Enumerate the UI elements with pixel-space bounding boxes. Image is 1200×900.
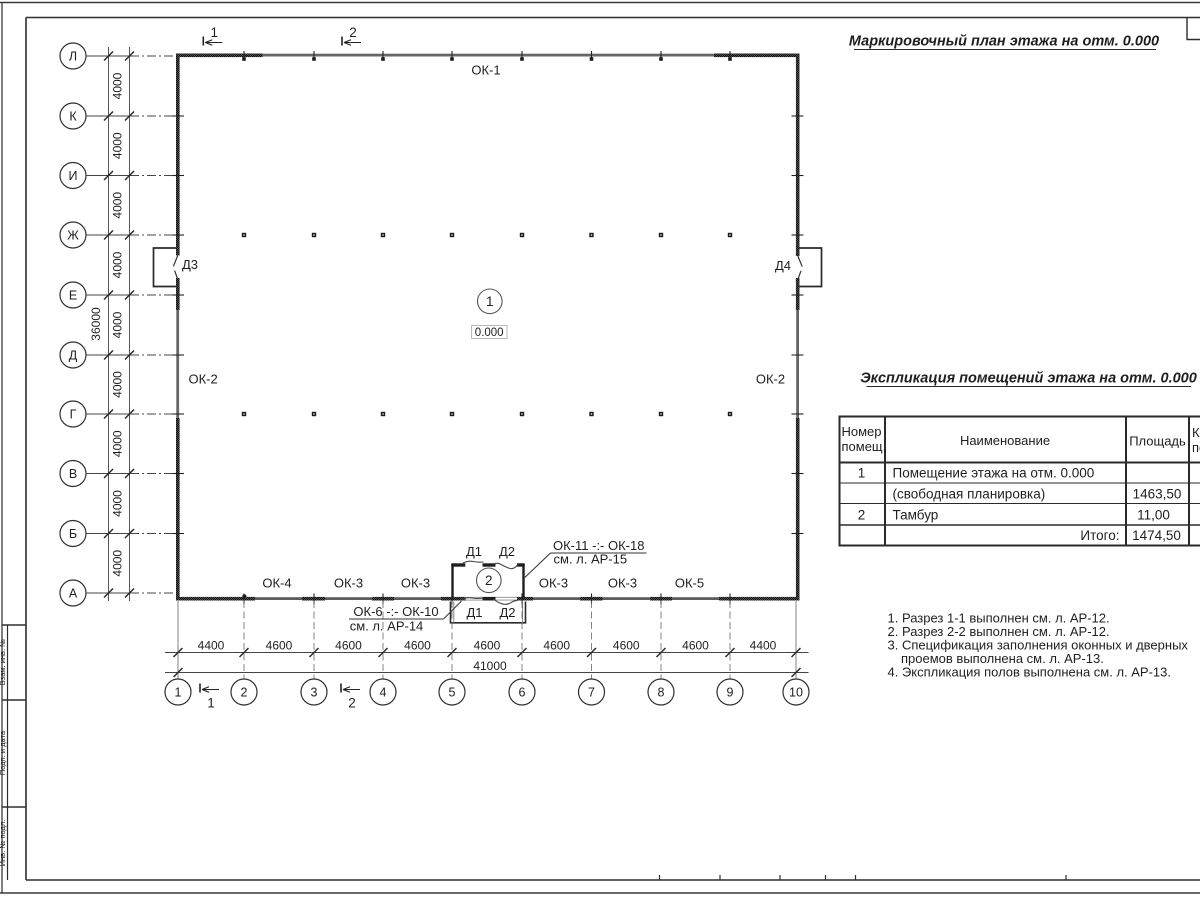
svg-text:7: 7 bbox=[588, 685, 595, 699]
svg-text:4000: 4000 bbox=[111, 430, 125, 457]
svg-text:1474,50: 1474,50 bbox=[1132, 528, 1181, 543]
svg-text:Номер: Номер bbox=[842, 424, 882, 439]
svg-text:1: 1 bbox=[211, 25, 219, 40]
svg-text:Д: Д bbox=[69, 348, 78, 362]
svg-text:Ж: Ж bbox=[67, 228, 79, 242]
svg-text:см. л. АР-15: см. л. АР-15 bbox=[554, 552, 628, 567]
svg-text:4600: 4600 bbox=[543, 639, 570, 653]
svg-text:ОК-2: ОК-2 bbox=[189, 372, 218, 387]
svg-text:Инв. № подл.: Инв. № подл. bbox=[0, 820, 7, 867]
svg-text:2: 2 bbox=[349, 25, 357, 40]
svg-text:1463,50: 1463,50 bbox=[1133, 487, 1182, 502]
svg-text:2: 2 bbox=[858, 508, 866, 523]
svg-text:Маркировочный план этажа на от: Маркировочный план этажа на отм. 0.000 bbox=[849, 34, 1159, 50]
svg-text:11,00: 11,00 bbox=[1137, 508, 1170, 523]
svg-text:4000: 4000 bbox=[111, 132, 125, 159]
svg-text:помещения: помещения bbox=[1192, 440, 1200, 455]
svg-text:2: 2 bbox=[485, 573, 493, 588]
svg-text:(свободная планировка): (свободная планировка) bbox=[893, 487, 1046, 502]
svg-text:Д2: Д2 bbox=[499, 605, 515, 620]
svg-text:ОК-3: ОК-3 bbox=[608, 576, 637, 591]
svg-text:4000: 4000 bbox=[111, 490, 125, 517]
svg-text:41000: 41000 bbox=[473, 659, 507, 673]
svg-text:3: 3 bbox=[311, 685, 318, 699]
svg-text:4600: 4600 bbox=[474, 639, 501, 653]
svg-text:Подп. и дата: Подп. и дата bbox=[0, 730, 7, 775]
svg-text:10: 10 bbox=[789, 685, 803, 699]
svg-text:Г: Г bbox=[70, 407, 77, 421]
svg-text:Д1: Д1 bbox=[466, 544, 482, 559]
svg-text:Д3: Д3 bbox=[182, 257, 198, 272]
svg-text:Помещение этажа на отм. 0.000: Помещение этажа на отм. 0.000 bbox=[893, 466, 1095, 481]
svg-text:Д2: Д2 bbox=[499, 544, 515, 559]
svg-text:ОК-1: ОК-1 bbox=[471, 63, 500, 78]
svg-text:2: 2 bbox=[348, 696, 356, 711]
svg-text:Экспликация помещений этажа на: Экспликация помещений этажа на отм. 0.00… bbox=[860, 371, 1197, 387]
svg-text:Взам. инв. №: Взам. инв. № bbox=[0, 639, 7, 685]
svg-text:1: 1 bbox=[207, 696, 215, 711]
svg-text:1: 1 bbox=[486, 294, 494, 309]
svg-text:4000: 4000 bbox=[111, 371, 125, 398]
svg-text:ОК-5: ОК-5 bbox=[675, 576, 704, 591]
svg-text:36000: 36000 bbox=[89, 307, 103, 341]
svg-text:Д1: Д1 bbox=[466, 605, 482, 620]
svg-text:1: 1 bbox=[175, 685, 182, 699]
svg-text:4600: 4600 bbox=[404, 639, 431, 653]
svg-text:ОК-6 -:- ОК-10: ОК-6 -:- ОК-10 bbox=[353, 604, 438, 619]
svg-text:0.000: 0.000 bbox=[475, 327, 504, 339]
svg-text:Д4: Д4 bbox=[775, 258, 791, 273]
svg-text:ОК-3: ОК-3 bbox=[401, 576, 430, 591]
svg-text:Наименование: Наименование bbox=[960, 433, 1050, 448]
svg-text:Е: Е bbox=[69, 288, 77, 302]
svg-text:Площадь: Площадь bbox=[1129, 434, 1186, 449]
svg-text:5: 5 bbox=[449, 685, 456, 699]
svg-text:8: 8 bbox=[658, 685, 665, 699]
svg-text:4. Экспликация полов выполнена: 4. Экспликация полов выполнена см. л. АР… bbox=[888, 665, 1172, 680]
svg-text:4600: 4600 bbox=[613, 639, 640, 653]
svg-text:4000: 4000 bbox=[111, 251, 125, 278]
svg-text:К: К bbox=[69, 109, 77, 123]
svg-text:4400: 4400 bbox=[750, 639, 777, 653]
svg-text:4000: 4000 bbox=[111, 550, 125, 577]
svg-text:4000: 4000 bbox=[111, 72, 125, 99]
svg-text:2: 2 bbox=[241, 685, 248, 699]
svg-text:4000: 4000 bbox=[111, 192, 125, 219]
svg-text:ОК-2: ОК-2 bbox=[756, 372, 785, 387]
svg-text:В: В bbox=[69, 467, 77, 481]
svg-text:6: 6 bbox=[519, 685, 526, 699]
svg-text:ОК-4: ОК-4 bbox=[262, 576, 291, 591]
svg-text:4400: 4400 bbox=[198, 639, 225, 653]
svg-text:см. л. АР-14: см. л. АР-14 bbox=[350, 619, 424, 634]
svg-text:Итого:: Итого: bbox=[1080, 528, 1119, 543]
svg-text:4600: 4600 bbox=[266, 639, 293, 653]
svg-text:ОК-3: ОК-3 bbox=[539, 576, 568, 591]
svg-text:4600: 4600 bbox=[335, 639, 362, 653]
svg-text:Категория: Категория bbox=[1192, 425, 1200, 440]
svg-text:4000: 4000 bbox=[111, 311, 125, 338]
svg-text:Тамбур: Тамбур bbox=[893, 508, 939, 523]
svg-text:4600: 4600 bbox=[682, 639, 709, 653]
svg-text:Б: Б bbox=[69, 527, 77, 541]
svg-text:1: 1 bbox=[858, 466, 866, 481]
svg-text:4: 4 bbox=[380, 685, 387, 699]
svg-text:Л: Л bbox=[69, 49, 77, 63]
svg-text:А: А bbox=[69, 586, 78, 600]
svg-text:9: 9 bbox=[727, 685, 734, 699]
svg-text:И: И bbox=[69, 169, 78, 183]
svg-text:ОК-3: ОК-3 bbox=[334, 576, 363, 591]
svg-text:помещ.: помещ. bbox=[842, 439, 887, 454]
